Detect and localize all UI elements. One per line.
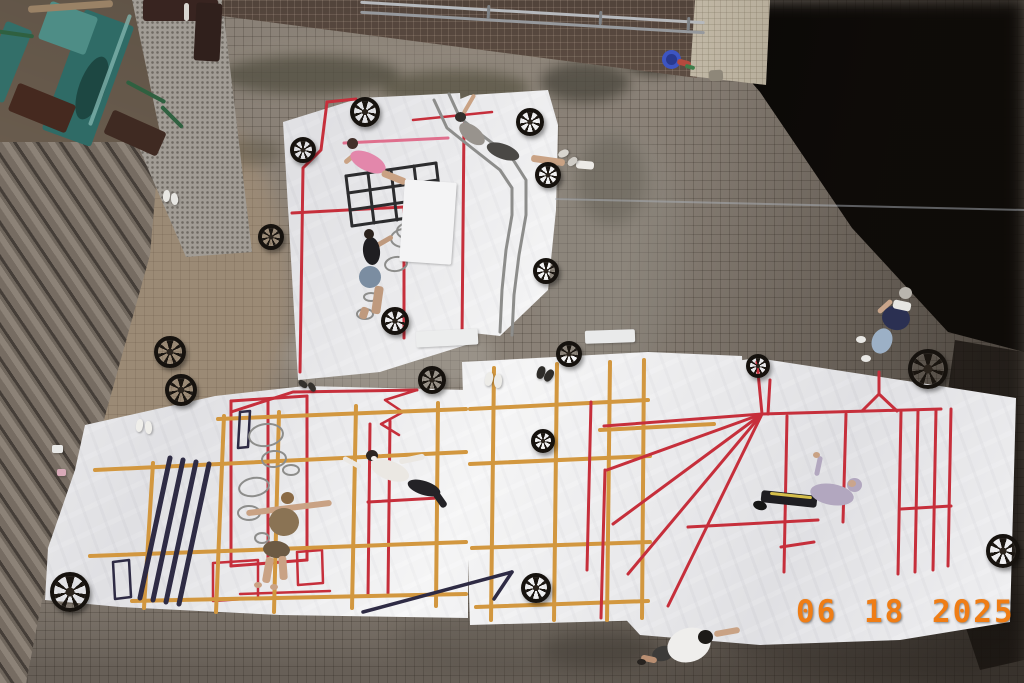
shoe [162, 190, 170, 203]
standing-man-polo [856, 336, 866, 343]
person-checkered-shirt-arms-out [262, 539, 291, 559]
walking-person-below [637, 659, 646, 665]
equipment-reel [746, 354, 770, 378]
equipment-reel [50, 572, 90, 612]
person-white-shirt-face-mask [342, 455, 362, 469]
equipment-reel [908, 349, 948, 389]
equipment-reel [418, 366, 446, 394]
person-gray-top-waving [462, 93, 476, 114]
camera-date-stamp: 06 18 2025 [796, 594, 1015, 630]
standing-man-polo [861, 355, 871, 362]
equipment-reel [165, 374, 197, 406]
person-checkered-shirt-arms-out [254, 582, 262, 588]
person-lavender-hoodie [813, 452, 820, 458]
person-gray-top-waving [576, 160, 595, 170]
equipment-reel [535, 162, 561, 188]
shoe [484, 371, 495, 386]
person-checkered-shirt-arms-out [278, 556, 288, 580]
walking-person-below [714, 627, 741, 637]
standing-man-polo [899, 287, 912, 299]
equipment-reel [521, 573, 551, 603]
person-checkered-shirt-arms-out [281, 492, 294, 504]
man-black-tshirt-drawing [364, 229, 374, 239]
courtyard-photo: 06 18 2025 [0, 0, 1024, 683]
person-gray-top-waving [455, 118, 488, 149]
person-gray-top-waving [484, 138, 521, 164]
equipment-reel [986, 534, 1020, 568]
equipment-reel [290, 137, 316, 163]
equipment-reel [350, 97, 380, 127]
man-black-tshirt-drawing [371, 286, 384, 315]
person-checkered-shirt-arms-out [270, 584, 278, 590]
person-lavender-hoodie [813, 456, 822, 477]
person-white-shirt-face-mask [399, 453, 426, 464]
shoe [494, 374, 502, 388]
walking-person-below [663, 622, 715, 668]
equipment-reel [531, 429, 555, 453]
woman-pink-dress [347, 138, 358, 149]
shoe [307, 381, 318, 393]
paper-sheet [585, 329, 635, 344]
equipment-reel [516, 108, 544, 136]
shoe [135, 418, 144, 432]
paper-sheet [52, 445, 63, 453]
equipment-reel [154, 336, 186, 368]
person-gray-top-waving [455, 112, 466, 122]
paper-sheet [416, 328, 479, 347]
person-white-shirt-face-mask [432, 490, 448, 509]
paper-sheet [57, 469, 66, 476]
man-black-tshirt-drawing [358, 306, 369, 320]
equipment-reel [381, 307, 409, 335]
equipment-reel [533, 258, 559, 284]
people-and-props-layer [0, 0, 1024, 683]
paper-sheet [399, 179, 457, 264]
shoe [557, 148, 570, 159]
person-lavender-hoodie [848, 480, 856, 487]
person-checkered-shirt-arms-out [262, 557, 274, 584]
shoe [170, 193, 178, 206]
woman-pink-dress [381, 169, 408, 185]
equipment-reel [258, 224, 284, 250]
shoe [144, 420, 152, 433]
equipment-reel [556, 341, 582, 367]
walking-person-below [698, 630, 713, 644]
standing-man-polo [868, 325, 896, 357]
person-white-shirt-face-mask [371, 456, 377, 461]
person-checkered-shirt-arms-out [268, 507, 300, 537]
